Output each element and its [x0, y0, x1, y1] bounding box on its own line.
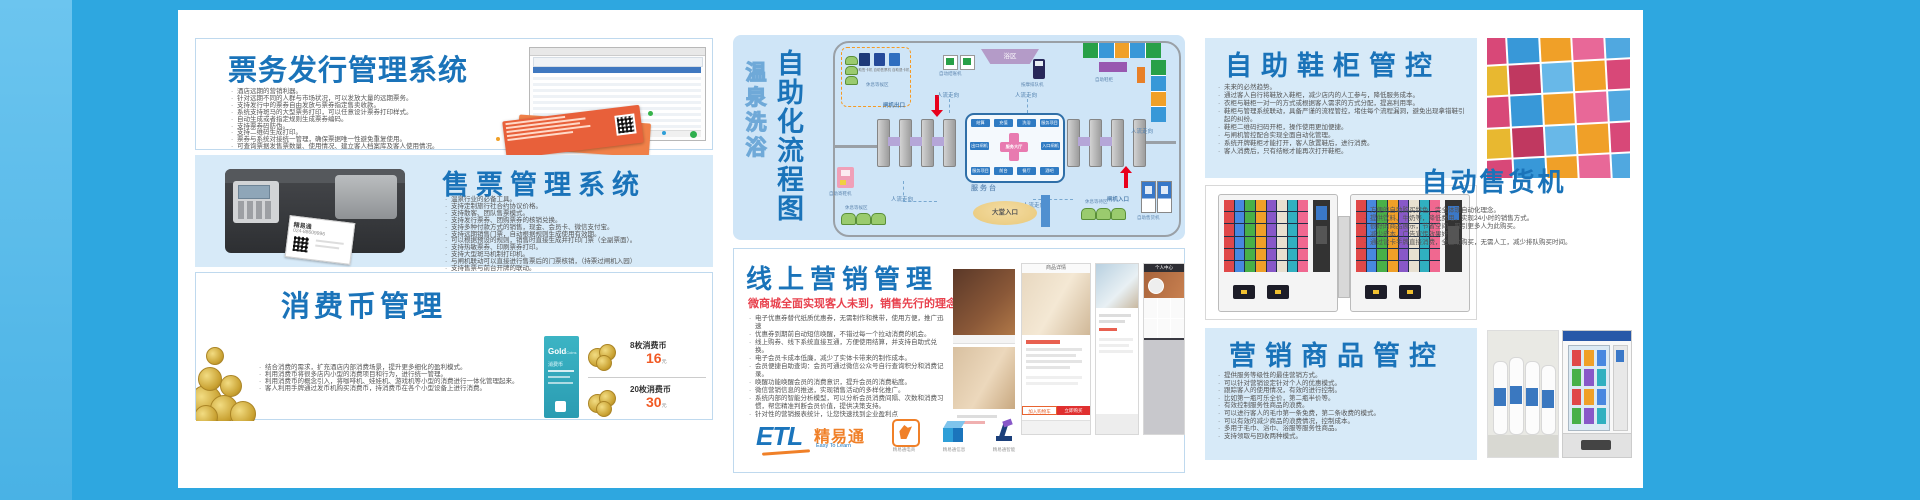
- bath-zone: 浴区: [981, 49, 1039, 64]
- cabinet-slot: [1581, 440, 1611, 450]
- mosaic-cell: [1584, 350, 1593, 366]
- wall: [833, 145, 877, 148]
- price-value-row: 16元: [646, 350, 667, 368]
- mosaic-cell: [1224, 212, 1234, 223]
- mosaic-cell: [1584, 408, 1593, 424]
- price-unit: 元: [662, 359, 667, 365]
- price-value: 30: [646, 394, 662, 410]
- mosaic-cell: [1151, 107, 1166, 122]
- printer-label-slip: 精易通 024-88609996: [285, 215, 356, 265]
- waiting-seat: [856, 213, 871, 225]
- mosaic-cell: [1288, 249, 1298, 260]
- service-hall-box: 结算 充值 洗浴 服务项目 出口闸机 入口闸机 服务项目 前台 餐厅 酒吧 服务…: [965, 113, 1065, 183]
- window-toolbar: [533, 57, 703, 67]
- price-divider: [588, 377, 706, 378]
- printer-screen: [238, 185, 270, 199]
- slot-mark: [1373, 290, 1379, 294]
- text-line: [1099, 350, 1133, 353]
- coin: [220, 375, 242, 397]
- mosaic-cell: [1597, 389, 1606, 405]
- mosaic-cell: [1277, 261, 1287, 272]
- mosaic-cell: [1298, 200, 1308, 211]
- bullet-line: 可以进行客人的毛巾第一条免费，第二条收费的模式。: [1217, 410, 1469, 418]
- hall-chip: 出口闸机: [970, 142, 989, 150]
- text-line: [1026, 348, 1082, 351]
- cube-left: [943, 428, 953, 442]
- hall-chip: 餐厅: [1017, 167, 1036, 175]
- mosaic-cell: [1541, 62, 1573, 93]
- mosaic-cell: [1543, 94, 1575, 125]
- bullet-line: 唤醒功能唤醒会员的消费意识，提升会员的消费粘度。: [748, 379, 946, 387]
- mosaic-cell: [1420, 249, 1430, 260]
- panel-online-marketing: 线上营销管理 微商城全面实现客人未到，销售先行的理念 电子优惠券替代纸质优惠券，…: [733, 248, 1185, 473]
- kiosk-machine-icon: [859, 53, 870, 66]
- vending-screen: [1316, 206, 1327, 220]
- mosaic-cell: [1487, 38, 1507, 65]
- mosaic-cell: [1487, 97, 1510, 128]
- waiting-area3-label: 休息等待区: [1085, 199, 1108, 205]
- hall-chip: 服务项目: [1040, 119, 1059, 127]
- mosaic-cell: [1235, 200, 1245, 211]
- list-photo: [1096, 264, 1138, 308]
- text-line: [1099, 314, 1131, 317]
- bullet-line: 电子会员卡成本低廉，减少了实体卡带来的制作成本。: [748, 355, 946, 363]
- logo-row: ETL 精易通 Easy To Learn 精易通电商 精易通信息: [756, 417, 1156, 465]
- turnstile-bar: [1078, 137, 1090, 146]
- mosaic-cell: [1409, 249, 1419, 260]
- turnstile-bar: [932, 137, 944, 146]
- kiosk-labels: 自助售卡机 自助售票机 自助退卡机: [855, 68, 909, 73]
- mosaic-cell: [1288, 224, 1298, 235]
- towel-roll: [1525, 361, 1540, 435]
- mosaic-cell: [1575, 92, 1607, 123]
- mosaic-cell: [1584, 369, 1593, 385]
- spa-photo: [953, 347, 1015, 409]
- checkout-label: 自动结账机: [939, 71, 962, 77]
- pickup-slot: [1267, 285, 1289, 299]
- bullet-line: 会员便捷自助查询：会员可通过微信公众号自行查询积分和消费记录。: [748, 363, 946, 379]
- panel-title: 线上营销管理: [746, 259, 938, 296]
- shelf-items: [1572, 350, 1606, 424]
- shoe-deposit-machine: [837, 167, 854, 188]
- mosaic-cell: [1298, 237, 1308, 248]
- mosaic-cell: [1256, 261, 1266, 272]
- mosaic-cell: [1277, 237, 1287, 248]
- mosaic-cell: [1572, 369, 1581, 385]
- bullet-line: 未来的必然趋势。: [1217, 84, 1469, 92]
- panel-subtitle: 微商城全面实现客人未到，销售先行的理念: [748, 295, 957, 311]
- waiting-area-label: 休息等候区: [866, 82, 889, 88]
- vending-text-block: 自动售货机 方便的自助购买特色，完全体现自动化理念。提供饮料、牛奶等，降低费用，…: [1355, 162, 1633, 239]
- app-screenshot-profile: 个人中心: [1143, 263, 1185, 435]
- cabinet-header: [1563, 331, 1631, 341]
- flow-direction-label: 人流走向: [1015, 91, 1037, 99]
- coin: [206, 347, 224, 365]
- mosaic-cell: [1604, 38, 1630, 59]
- confetti-dot: [496, 137, 500, 141]
- mosaic-cell: [1512, 126, 1544, 157]
- waiting-area2-label: 休息等候区: [845, 205, 868, 211]
- locker-bench: [1099, 62, 1127, 72]
- vending-window: [1161, 186, 1168, 194]
- mosaic-cell: [1288, 200, 1298, 211]
- panel-title: 票务发行管理系统: [228, 47, 468, 89]
- company-caption: 精易通智能: [984, 447, 1024, 453]
- mosaic-cell: [1367, 261, 1377, 272]
- label-line: [315, 244, 339, 249]
- poster-stage: 票务发行管理系统 酒店远期的营销利器。针对远期不同的人群与市场状况，可以发放大量…: [0, 0, 1920, 500]
- panel-goods-control: 营销商品管控 提供服务等级性的最佳营销方式。可以针对营销设定针对个人的优惠模式。…: [1205, 328, 1477, 460]
- vending-keypad: [1316, 226, 1327, 244]
- mosaic-cell: [1151, 60, 1166, 75]
- service-desk-label: 服务台: [971, 183, 998, 193]
- bullet-line: 优惠券到期前自动短信唤醒，不错过每一个拉动消费的机会。: [748, 331, 946, 339]
- mosaic-cell: [1487, 128, 1512, 159]
- mosaic-cell: [1298, 249, 1308, 260]
- vending-window: [1145, 186, 1152, 194]
- flow-direction-label: 人流走向: [937, 91, 959, 99]
- price-unit: 元: [662, 403, 667, 409]
- mosaic-cell: [1584, 389, 1593, 405]
- mosaic-cell: [1420, 261, 1430, 272]
- waiting-seat: [845, 66, 858, 75]
- queue-machine: [1033, 59, 1045, 79]
- mosaic-cell: [1256, 200, 1266, 211]
- panel-flow-diagram: 温泉洗浴 自助化流程图 自助售卡机 自助售票机 自助退卡机 休息等候区 自动结账…: [733, 35, 1185, 240]
- hall-chip: 洗浴: [1017, 119, 1036, 127]
- spa-photo: [953, 269, 1015, 335]
- mosaic-cell: [1577, 123, 1609, 154]
- bullet-line: 通过客人自行将鞋放入鞋柜，减少店内的人工参与，降低服务成本。: [1217, 92, 1469, 100]
- bullet-line: 系统开牌鞋柜才能打开，客人放置鞋后，进行消费。: [1217, 140, 1469, 148]
- shoe-lockers-photo: [1487, 38, 1630, 178]
- robot-arm-icon: [993, 420, 1015, 443]
- panel-ticket-sales: 精易通 024-88609996 售票管理系统 温泉行业的必备工具。支持定制旅行…: [195, 155, 713, 267]
- text-line: [1026, 360, 1082, 363]
- mosaic-cell: [1288, 261, 1298, 272]
- kiosk-machine-icon: [874, 53, 885, 66]
- deposit-label: 自助寄鞋机: [829, 191, 852, 197]
- cube-right: [953, 428, 963, 442]
- coin: [230, 401, 256, 421]
- window-titlebar: [530, 48, 705, 56]
- cabinet-controls: [1613, 345, 1628, 431]
- bullet-line: 系统内部的智能分析模型，可以分析会员消费间隔、次数和消费习惯，帮您精准判断会员价…: [748, 395, 946, 411]
- cabinet-screen: [1616, 350, 1624, 362]
- app-header: 个人中心: [1144, 264, 1184, 272]
- flow-path: [903, 181, 904, 201]
- add-to-cart-button: 加入购物车: [1022, 406, 1057, 415]
- status-green-dot: [690, 131, 697, 138]
- mosaic-cell: [1572, 389, 1581, 405]
- buy-bar: 加入购物车 立即购买: [1022, 406, 1090, 415]
- mosaic-cell: [1267, 261, 1277, 272]
- coin: [596, 355, 612, 371]
- app-screenshot-product: 商品详情 加入购物车 立即购买: [1021, 263, 1091, 435]
- price-coins-photo: [588, 340, 622, 370]
- qr-pattern: [617, 116, 635, 134]
- kiosk-area: 自助售卡机 自助售票机 自助退卡机 休息等候区: [841, 47, 911, 107]
- mosaic-cell: [1606, 59, 1630, 90]
- cabinet-window: [1568, 345, 1610, 431]
- mosaic-cell: [1288, 212, 1298, 223]
- mosaic-cell: [1409, 261, 1419, 272]
- mosaic-cell: [1267, 249, 1277, 260]
- bullet-line: 减少成本，广告宣传效果好。: [1363, 231, 1625, 239]
- card-word-coins: Coins: [566, 350, 576, 355]
- bullet-line: 跟踪客人的使用情况，有效的进行控制。: [1217, 387, 1469, 395]
- mosaic-cell: [1356, 249, 1366, 260]
- mosaic-cell: [1256, 249, 1266, 260]
- mosaic-cell: [1235, 212, 1245, 223]
- kiosk-machine-icon: [889, 53, 900, 66]
- checkout-machine: [960, 55, 975, 70]
- mosaic-cell: [1574, 61, 1606, 92]
- mosaic-cell: [1277, 200, 1287, 211]
- bullet-line: 方便的自助购买特色，完全体现自动化理念。: [1363, 207, 1625, 215]
- mosaic-cell: [1245, 200, 1255, 211]
- turnstile-bar: [888, 137, 900, 146]
- mosaic-cell: [1256, 224, 1266, 235]
- bullet-list: 方便的自助购买特色，完全体现自动化理念。提供饮料、牛奶等，降低费用，实现24小时…: [1363, 207, 1625, 247]
- cube-icon: [943, 421, 965, 443]
- robot-claw: [1002, 419, 1013, 428]
- waiting-seat: [841, 213, 856, 225]
- panel-shoe-cabinet: 自助鞋柜管控 未来的必然趋势。通过客人自行将鞋放入鞋柜，减少店内的人工参与，降低…: [1205, 38, 1477, 178]
- mosaic-cell: [1267, 237, 1277, 248]
- text-line: [1026, 376, 1082, 379]
- left-blue-strip: [0, 0, 72, 500]
- waiting-seat: [1081, 208, 1096, 220]
- mosaic-cell: [1277, 224, 1287, 235]
- mosaic-cell: [1399, 261, 1409, 272]
- mosaic-cell: [1224, 261, 1234, 272]
- waiting-seat: [1096, 208, 1111, 220]
- mosaic-cell: [1356, 261, 1366, 272]
- card-word-gold: Gold: [548, 347, 566, 356]
- coins-photo: [196, 331, 336, 421]
- queue-label: 按摩排队机: [1021, 82, 1044, 88]
- mosaic-cell: [1224, 237, 1234, 248]
- mosaic-cell: [1609, 121, 1630, 152]
- mosaic-cell: [1224, 249, 1234, 260]
- vending-machine: [1218, 194, 1338, 312]
- printer-buttons: [238, 201, 272, 219]
- mosaic-cell: [1277, 212, 1287, 223]
- gold-card: GoldCoins 消费币: [544, 336, 579, 418]
- qr-code: [614, 113, 636, 135]
- company-caption: 精易通信息: [934, 447, 974, 453]
- flow-path: [949, 99, 950, 113]
- text-line: [1026, 366, 1070, 369]
- mosaic-cell: [1487, 66, 1509, 97]
- slot-mark: [1407, 290, 1413, 294]
- bullet-line: 提供饮料、牛奶等，降低费用，实现24小时的销售方式。: [1363, 215, 1625, 223]
- locker-accent: [1137, 67, 1145, 83]
- mosaic-cell: [1367, 249, 1377, 260]
- mosaic-cell: [1507, 38, 1539, 64]
- flow-locker-row: [1083, 43, 1161, 58]
- panel-title: 自助鞋柜管控: [1225, 44, 1441, 83]
- waiting-seat: [1111, 208, 1126, 220]
- card-app-icon: [555, 401, 566, 412]
- card-label: 消费币: [548, 361, 576, 368]
- bullet-list: 提供服务等级性的最佳营销方式。可以针对营销设定针对个人的优惠模式。跟踪客人的使用…: [1217, 372, 1469, 440]
- coin: [198, 367, 222, 391]
- mosaic-cell: [1572, 38, 1604, 60]
- confetti-dot: [662, 131, 666, 135]
- card-line: [548, 370, 574, 372]
- text-line: [1099, 344, 1129, 347]
- deposit-screen: [841, 170, 850, 176]
- bullet-list: 未来的必然趋势。通过客人自行将鞋放入鞋柜，减少店内的人工参与，降低服务成本。衣柜…: [1217, 84, 1469, 156]
- photo-caption-bar: [953, 335, 1015, 344]
- mosaic-cell: [1298, 224, 1308, 235]
- flow-path: [1027, 99, 1028, 113]
- mosaic-cell: [1245, 249, 1255, 260]
- app-screenshot-list: [1095, 263, 1139, 435]
- mosaic-cell: [1430, 249, 1440, 260]
- bullet-line: 微信营销信息的推送，实现销售活动的多样化推广。: [748, 387, 946, 395]
- lockers-label: 自助鞋柜: [1095, 77, 1113, 83]
- bullet-line: 线上购券、线下系统直接互通，方便使用结算，并支持自助式兑换。: [748, 339, 946, 355]
- locker-mosaic: [1487, 38, 1630, 178]
- price-line: [1099, 328, 1117, 331]
- buy-now-button: 立即购买: [1057, 406, 1090, 415]
- printer-photo: 精易通 024-88609996: [225, 163, 405, 259]
- bullet-list: 温泉行业的必备工具。支持定制旅行社合约协议价格。支持散客、团队售票模式。支持发行…: [444, 197, 706, 273]
- turnstile-pillar: [943, 119, 956, 167]
- menu-cell: [1171, 319, 1184, 339]
- gate-entry-arrow: [1124, 173, 1128, 188]
- waiting-seat: [871, 213, 886, 225]
- price-line: [1026, 340, 1060, 344]
- coin-price-list: 8枚消费币 16元 20枚消费币 30元: [588, 336, 706, 420]
- flow-path: [1033, 199, 1073, 200]
- logo-tagline: Easy To Learn: [816, 443, 851, 449]
- flow-vending-machine: [1141, 181, 1156, 213]
- hall-chip: 结算: [971, 119, 990, 127]
- mosaic-cell: [1399, 249, 1409, 260]
- price-coins-photo: [588, 386, 622, 416]
- bullet-line: 鞋柜二维码扫码开柜，操作使用更加便捷。: [1217, 124, 1469, 132]
- price-value-row: 30元: [646, 394, 667, 412]
- mosaic-cell: [1151, 76, 1166, 91]
- panel-ticket-issuing: 票务发行管理系统 酒店远期的营销利器。针对远期不同的人群与市场状况，可以发放大量…: [195, 38, 713, 150]
- mosaic-cell: [1267, 200, 1277, 211]
- turnstile-bar: [1100, 137, 1112, 146]
- confetti-dot: [648, 111, 653, 116]
- card-line: [548, 376, 570, 378]
- mosaic-cell: [1608, 90, 1630, 121]
- flow-title-vertical: 自助化流程图: [769, 49, 808, 223]
- mosaic-cell: [1509, 64, 1541, 95]
- pickup-slot: [1233, 285, 1255, 299]
- bullet-line: 很好的商品展示，节省空间，吸引更多人为此购买。: [1363, 223, 1625, 231]
- price-value: 16: [646, 350, 662, 366]
- panel-title: 自动售货机: [1355, 162, 1633, 199]
- menu-cell: [1158, 298, 1171, 318]
- menu-cell: [1144, 319, 1157, 339]
- checkout-screen: [963, 58, 971, 65]
- mosaic-cell: [1388, 261, 1398, 272]
- label-qr-code: [292, 236, 309, 253]
- checkout-screen: [946, 58, 954, 65]
- bullet-line: 有效控制服务性商品的浪费。: [1217, 402, 1469, 410]
- lobby-pillar: [1041, 195, 1050, 227]
- mosaic-cell: [1256, 237, 1266, 248]
- hall-chip: 服务项目: [971, 167, 990, 175]
- flow-direction-label: 人流走向: [1131, 127, 1153, 135]
- towel-vending-photo: [1562, 330, 1632, 458]
- towel-label: [1526, 388, 1538, 406]
- pickup-slot: [1399, 285, 1421, 299]
- flow-path: [903, 201, 937, 202]
- menu-cell: [1171, 298, 1184, 318]
- mosaic-cell: [1256, 212, 1266, 223]
- horse-shape: [898, 425, 912, 439]
- gate-entry-label: 闸机入口: [1107, 195, 1129, 203]
- table-header-row: [533, 67, 701, 73]
- towel-label: [1542, 390, 1554, 408]
- avatar: [1148, 278, 1164, 294]
- flow-vending-machine: [1157, 181, 1172, 213]
- mosaic-cell: [1146, 43, 1161, 58]
- mosaic-cell: [1288, 237, 1298, 248]
- mosaic-cell: [1430, 261, 1440, 272]
- mosaic-cell: [1511, 95, 1543, 126]
- mosaic-cell: [1245, 237, 1255, 248]
- mosaic-cell: [1245, 224, 1255, 235]
- bullet-line: 与闸机管控配合实现全面自动化管理。: [1217, 132, 1469, 140]
- bullet-line: 鞋柜与管理系统联动，具备严谨的流程管控，堵住每个流程漏洞，避免出现拿错鞋引起的纠…: [1217, 108, 1469, 124]
- profile-menu-grid: [1144, 298, 1184, 338]
- mosaic-cell: [1572, 350, 1581, 366]
- bullet-line: 客人消费后，只有结帐才能再次打开鞋柜。: [1217, 148, 1469, 156]
- mosaic-cell: [1224, 224, 1234, 235]
- hall-chip: 酒吧: [1040, 167, 1059, 175]
- hall-label: 服务大厅: [1000, 144, 1028, 150]
- text-line: [1099, 338, 1133, 341]
- panel-consumption-coin: 消费币管理 结合消费的需求，扩充酒店内部消费场景，提升更多细化的盈利模式。利用消…: [195, 272, 713, 420]
- printer-media-door: [335, 175, 397, 219]
- company-caption: 精易通电商: [884, 447, 924, 453]
- checkout-machine: [943, 55, 958, 70]
- etl-logo-text: ETL: [756, 421, 802, 452]
- mosaic-cell: [1545, 125, 1577, 156]
- app-screenshot-spa: [953, 269, 1015, 429]
- waiting-seat: [845, 76, 858, 85]
- vending-products: [1224, 200, 1308, 272]
- queue-screen: [1035, 61, 1043, 66]
- bullet-line: 电子优惠券替代纸质优惠券，无需制作和携带，使用方便，推广迅速: [748, 315, 946, 331]
- kiosk-label: 自助退卡机: [892, 68, 910, 72]
- mosaic-cell: [1298, 212, 1308, 223]
- vending-control-strip: [1313, 200, 1330, 272]
- mosaic-cell: [1267, 212, 1277, 223]
- mosaic-cell: [1597, 408, 1606, 424]
- bullet-list: 酒店远期的营销利器。针对远期不同的人群与市场状况，可以发放大量的远期票务。支持发…: [230, 89, 520, 151]
- panel-title: 营销商品管控: [1229, 334, 1445, 373]
- mosaic-cell: [1267, 224, 1277, 235]
- pickup-slot: [1365, 285, 1387, 299]
- text-line: [1026, 354, 1076, 357]
- mosaic-cell: [1235, 261, 1245, 272]
- mosaic-cell: [1151, 92, 1166, 107]
- wall: [1144, 141, 1176, 144]
- mosaic-cell: [1388, 249, 1398, 260]
- hall-chip: 前台: [994, 167, 1013, 175]
